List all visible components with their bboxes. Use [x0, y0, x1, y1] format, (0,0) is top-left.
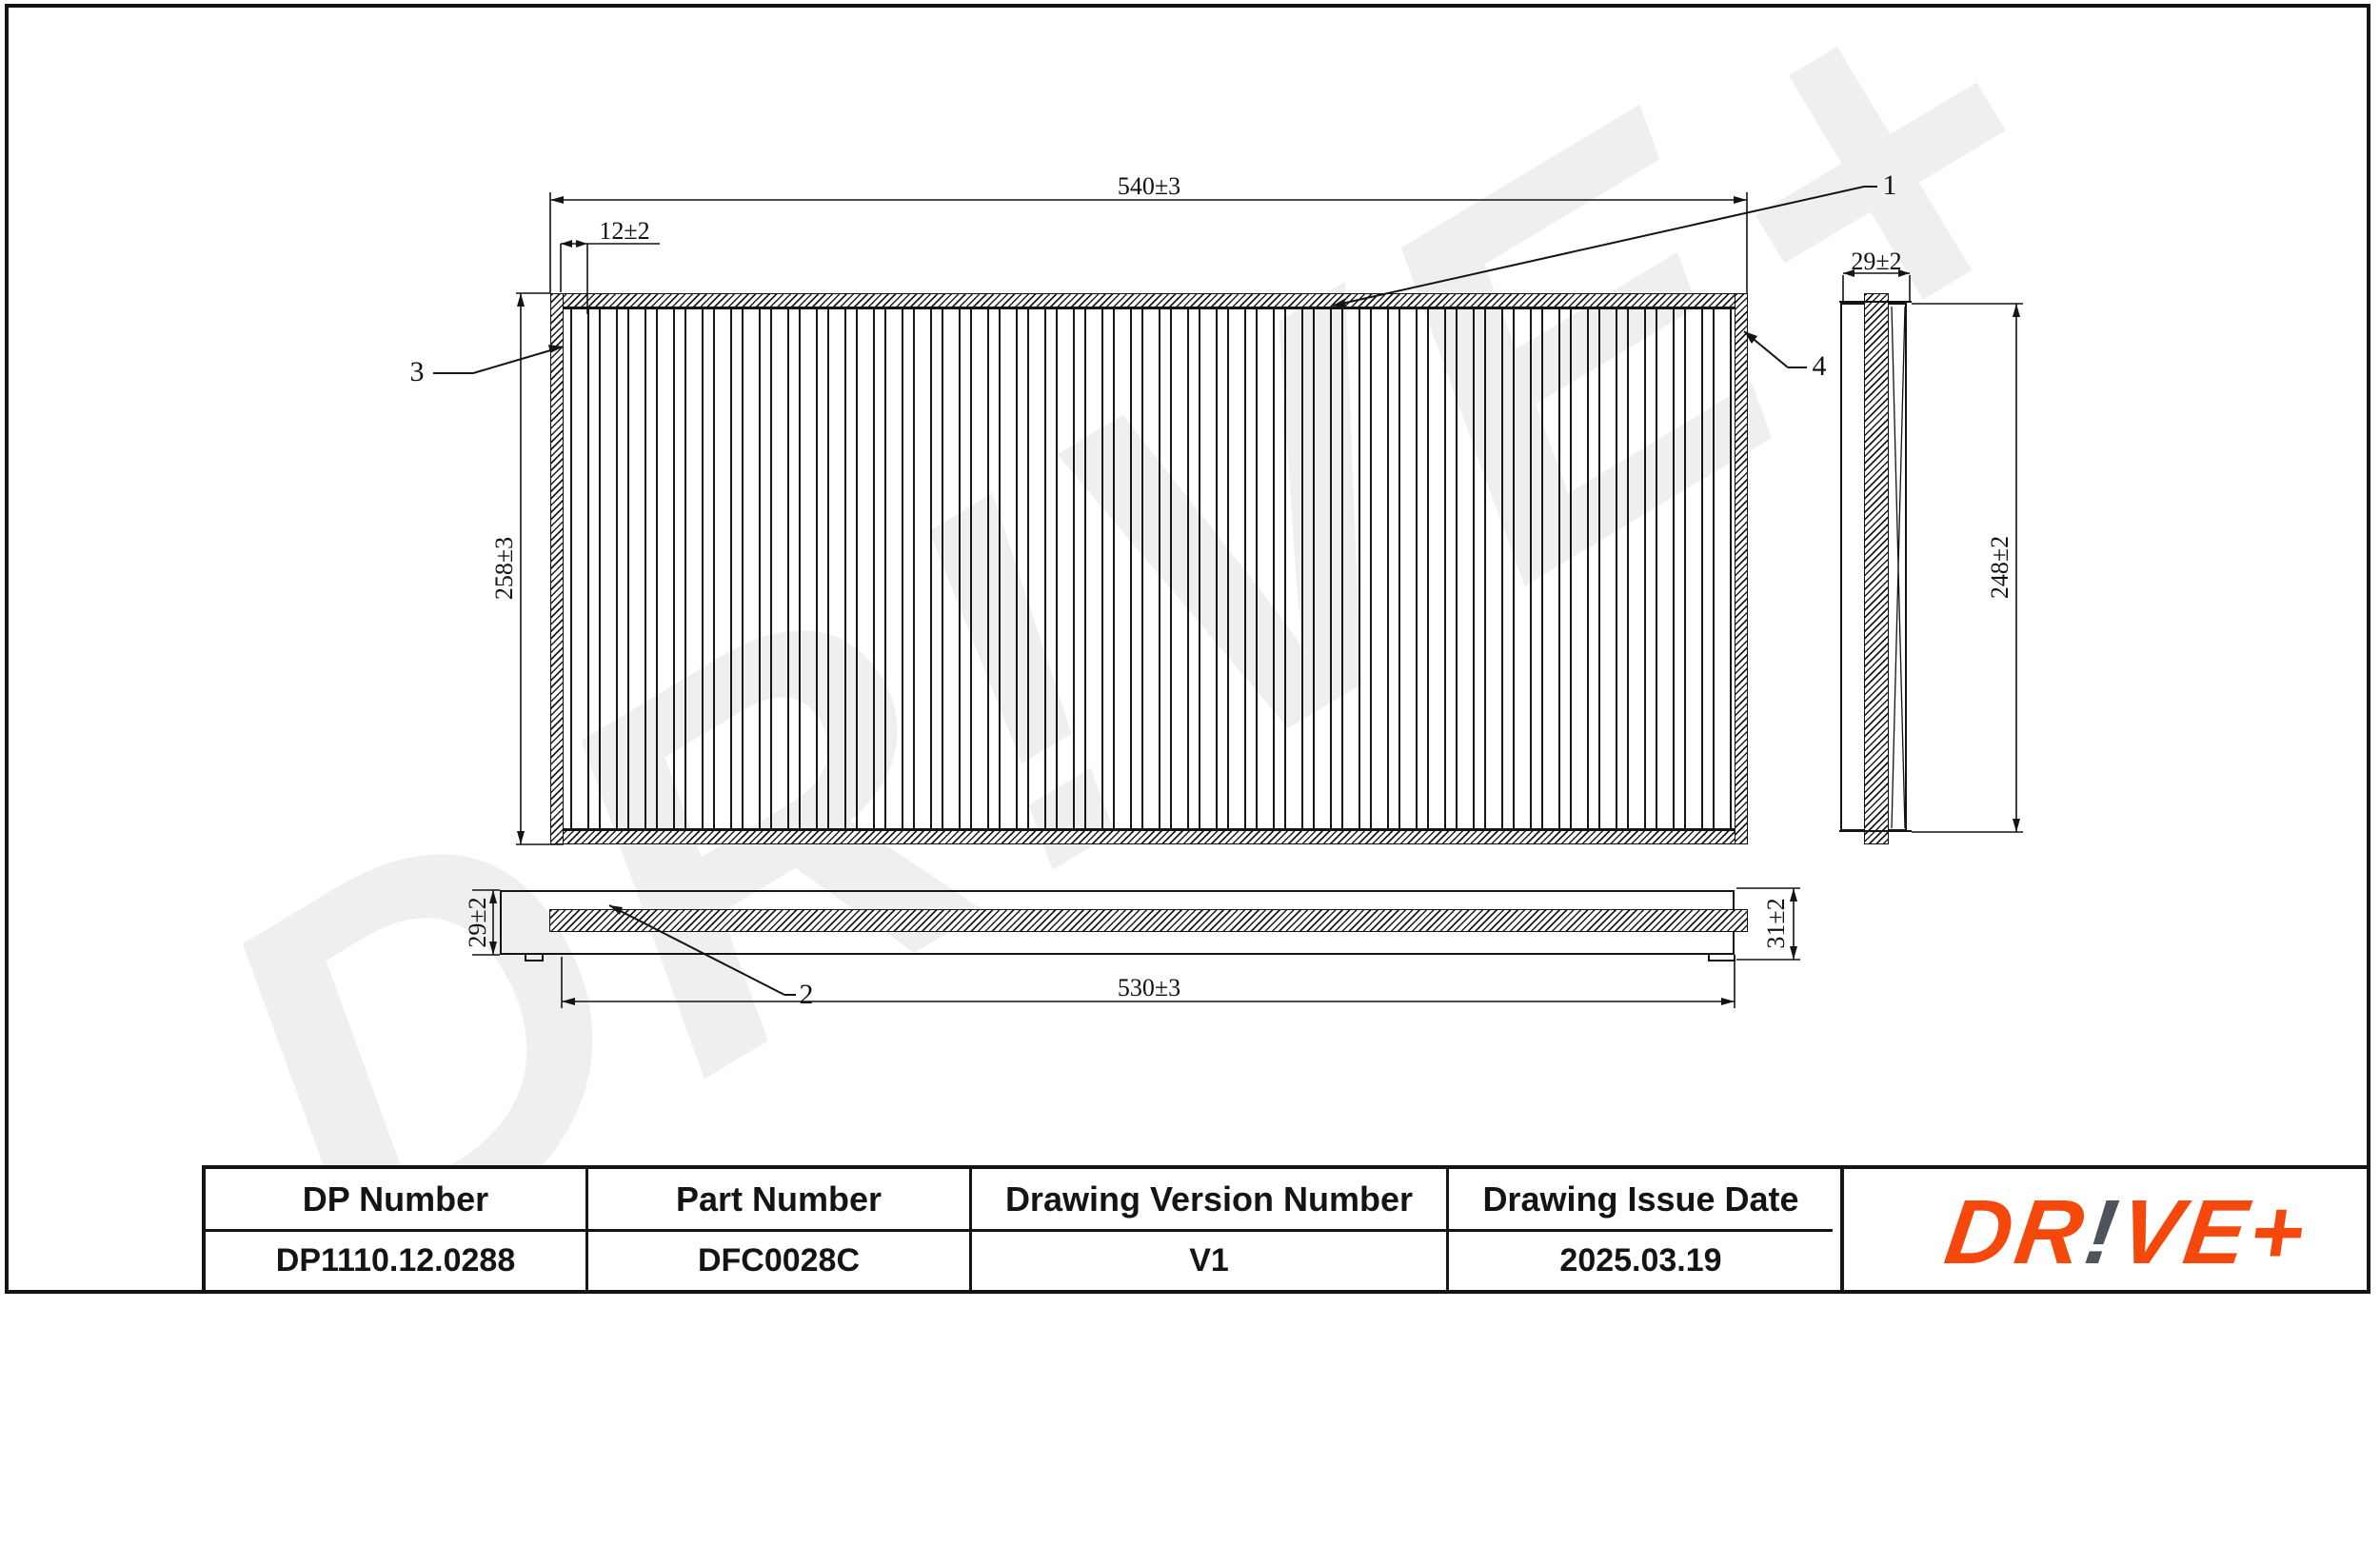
logo-suffix: VE+ [2113, 1180, 2315, 1285]
drawing-version-value: V1 [972, 1232, 1449, 1290]
dim-front-width-label: 540±3 [1118, 172, 1180, 201]
dim-front-height-label: 258±3 [490, 537, 519, 600]
dim-side-height-label: 248±2 [1986, 536, 2014, 599]
dimension-lines-svg [0, 0, 2380, 1298]
dim-side-width-label: 29±2 [1851, 248, 1901, 276]
issue-date-value: 2025.03.19 [1449, 1232, 1833, 1290]
issue-date-header: Drawing Issue Date [1449, 1169, 1833, 1232]
dim-bottom-width-label: 530±3 [1118, 974, 1180, 1002]
title-block-top-rule [1844, 1165, 2370, 1169]
callout-1-label: 1 [1883, 169, 1897, 202]
dim-bottom-right-height-label: 31±2 [1762, 898, 1791, 948]
part-number-header: Part Number [588, 1169, 972, 1232]
drawing-sheet: { "watermark": { "text": "DR!VE+" }, "dr… [0, 0, 2380, 1298]
logo-prefix: DR [1939, 1180, 2093, 1285]
title-block-table: DP Number Part Number Drawing Version Nu… [202, 1165, 1844, 1294]
callout-4-label: 4 [1813, 350, 1827, 383]
callout-2-label: 2 [800, 979, 814, 1011]
dp-number-header: DP Number [206, 1169, 588, 1232]
dim-front-edge-offset-label: 12±2 [599, 217, 649, 246]
drawing-version-header: Drawing Version Number [972, 1169, 1449, 1232]
dim-bottom-left-height-label: 29±2 [464, 897, 492, 947]
dp-number-value: DP1110.12.0288 [206, 1232, 588, 1290]
part-number-value: DFC0028C [588, 1232, 972, 1290]
drive-logo: DR!VE+ [1885, 1180, 2368, 1285]
callout-3-label: 3 [410, 356, 425, 388]
